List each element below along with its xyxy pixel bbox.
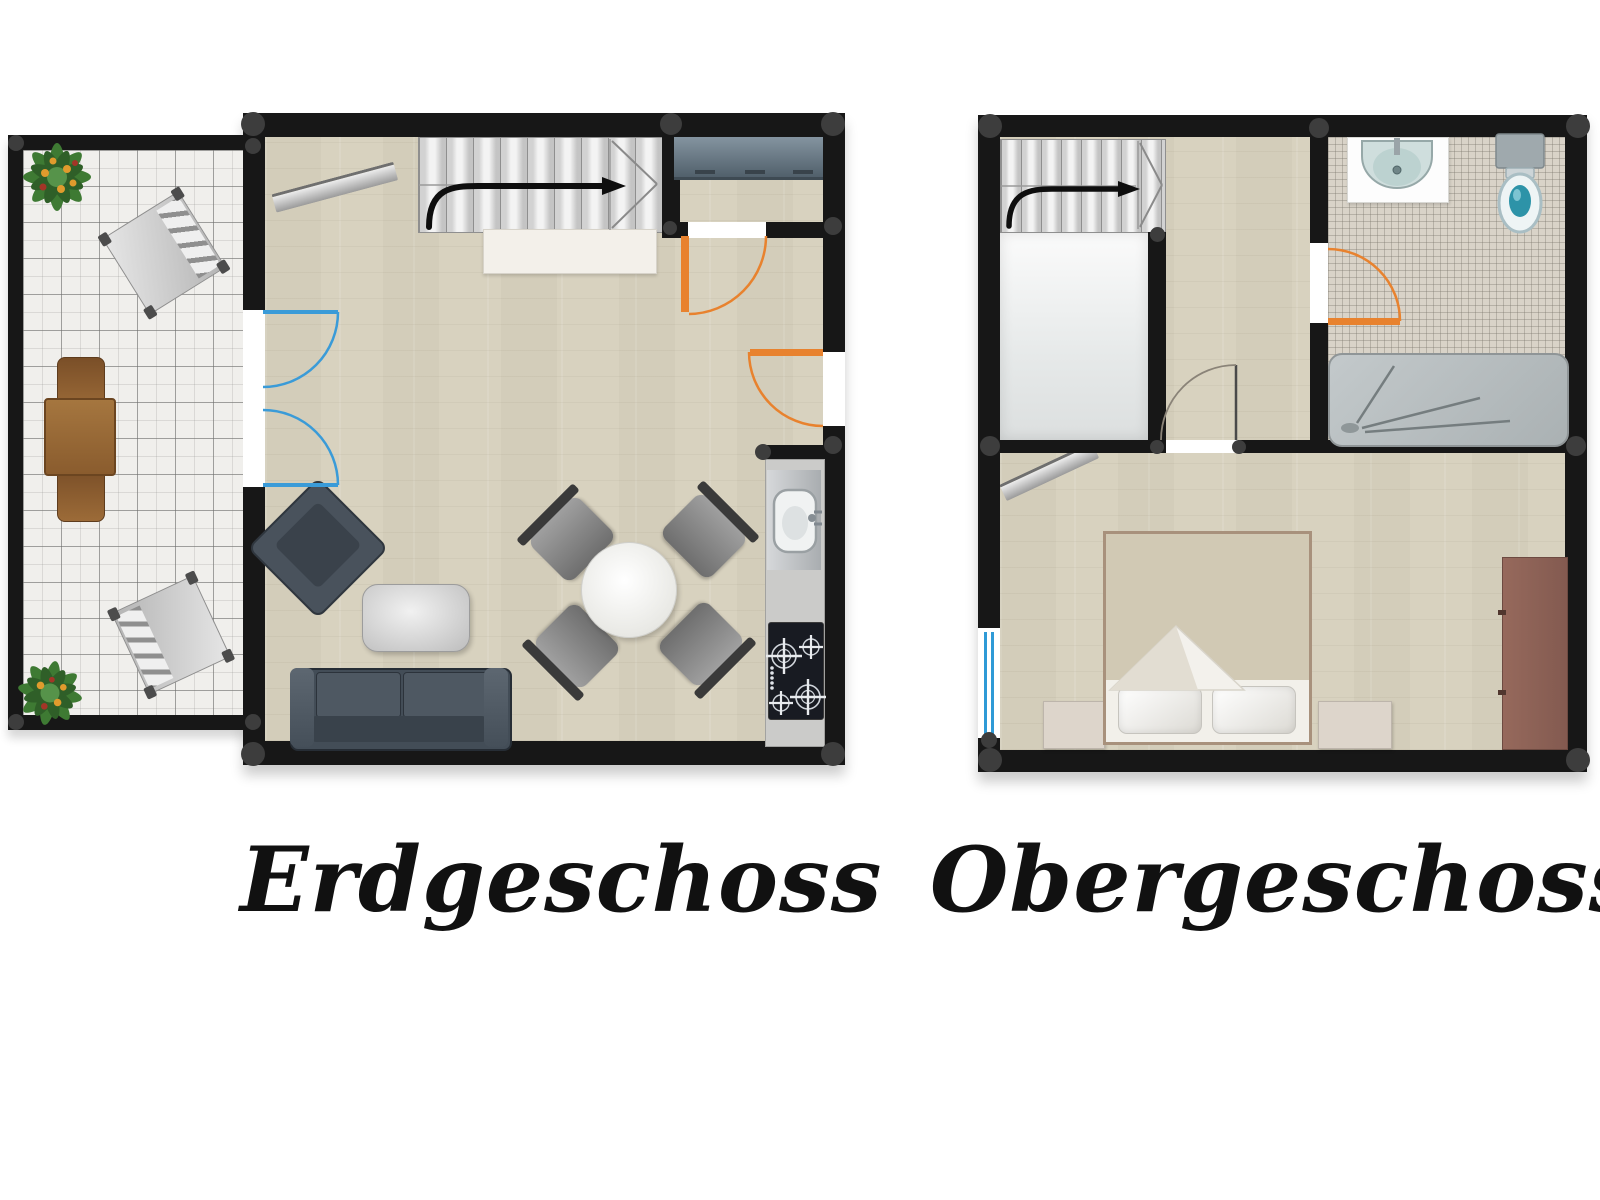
double-bed bbox=[1103, 531, 1312, 745]
bedroom-door-opening bbox=[1166, 440, 1238, 453]
bathroom-door-opening bbox=[1310, 243, 1328, 323]
wash-basin-cabinet bbox=[1347, 137, 1449, 203]
floorplan-canvas: Erdgeschoss Obergeschoss bbox=[0, 0, 1600, 1200]
shower-tray bbox=[1328, 353, 1569, 447]
wall-node bbox=[1150, 440, 1164, 454]
wall-node bbox=[1566, 748, 1590, 772]
wardrobe bbox=[1502, 557, 1568, 750]
wall-node bbox=[978, 114, 1002, 138]
window-glass-line bbox=[991, 632, 994, 736]
window-opening bbox=[978, 628, 1000, 738]
bathroom-door-leaf bbox=[1328, 318, 1400, 325]
bathroom-wall-lower bbox=[1310, 323, 1328, 441]
wall-node bbox=[1566, 436, 1586, 456]
wall-node bbox=[1566, 114, 1590, 138]
obergeschoss-plan bbox=[0, 0, 1600, 1200]
stairwell-void bbox=[1000, 232, 1148, 440]
floor-label-obergeschoss: Obergeschoss bbox=[930, 815, 1470, 955]
wardrobe-handle bbox=[1498, 690, 1506, 695]
wall-left-upper bbox=[978, 115, 1000, 628]
wall-node bbox=[978, 748, 1002, 772]
stairwell-wall bbox=[1148, 232, 1166, 441]
pillow bbox=[1212, 686, 1296, 734]
wardrobe-handle bbox=[1498, 610, 1506, 615]
bathroom-wall-upper bbox=[1310, 137, 1328, 243]
nightstand bbox=[1043, 701, 1105, 749]
bedroom-wall-left bbox=[995, 440, 1166, 453]
wall-node bbox=[1150, 227, 1165, 242]
window-glass-line bbox=[984, 632, 987, 736]
nightstand bbox=[1318, 701, 1392, 749]
floor-label-erdgeschoss: Erdgeschoss bbox=[240, 815, 760, 955]
wall-node bbox=[980, 436, 1000, 456]
wall-node bbox=[1232, 440, 1246, 454]
pillow bbox=[1118, 686, 1202, 734]
staircase bbox=[1000, 139, 1166, 233]
wall-node bbox=[981, 732, 997, 748]
wall-bottom bbox=[978, 750, 1587, 772]
wall-top bbox=[978, 115, 1587, 137]
wall-node bbox=[1309, 118, 1329, 138]
